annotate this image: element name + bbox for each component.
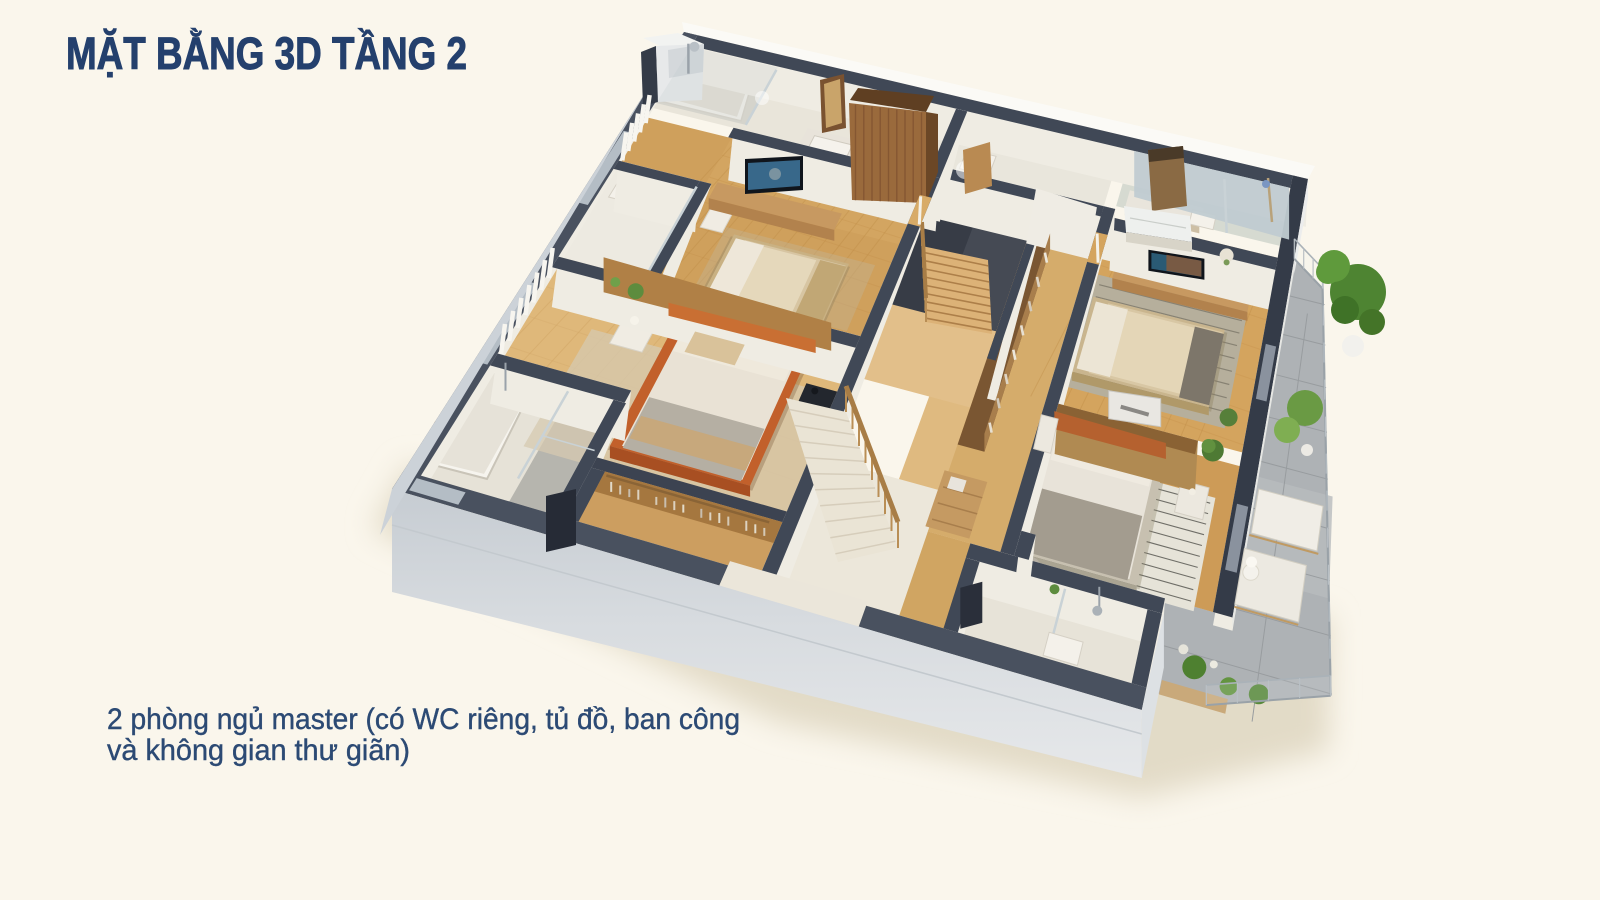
- svg-text:và không gian thư giãn): và không gian thư giãn): [107, 734, 410, 767]
- svg-text:MẶT BẰNG 3D TẦNG 2: MẶT BẰNG 3D TẦNG 2: [66, 28, 467, 79]
- svg-text:2 phòng ngủ master (có WC riên: 2 phòng ngủ master (có WC riêng, tủ đồ, …: [107, 703, 740, 736]
